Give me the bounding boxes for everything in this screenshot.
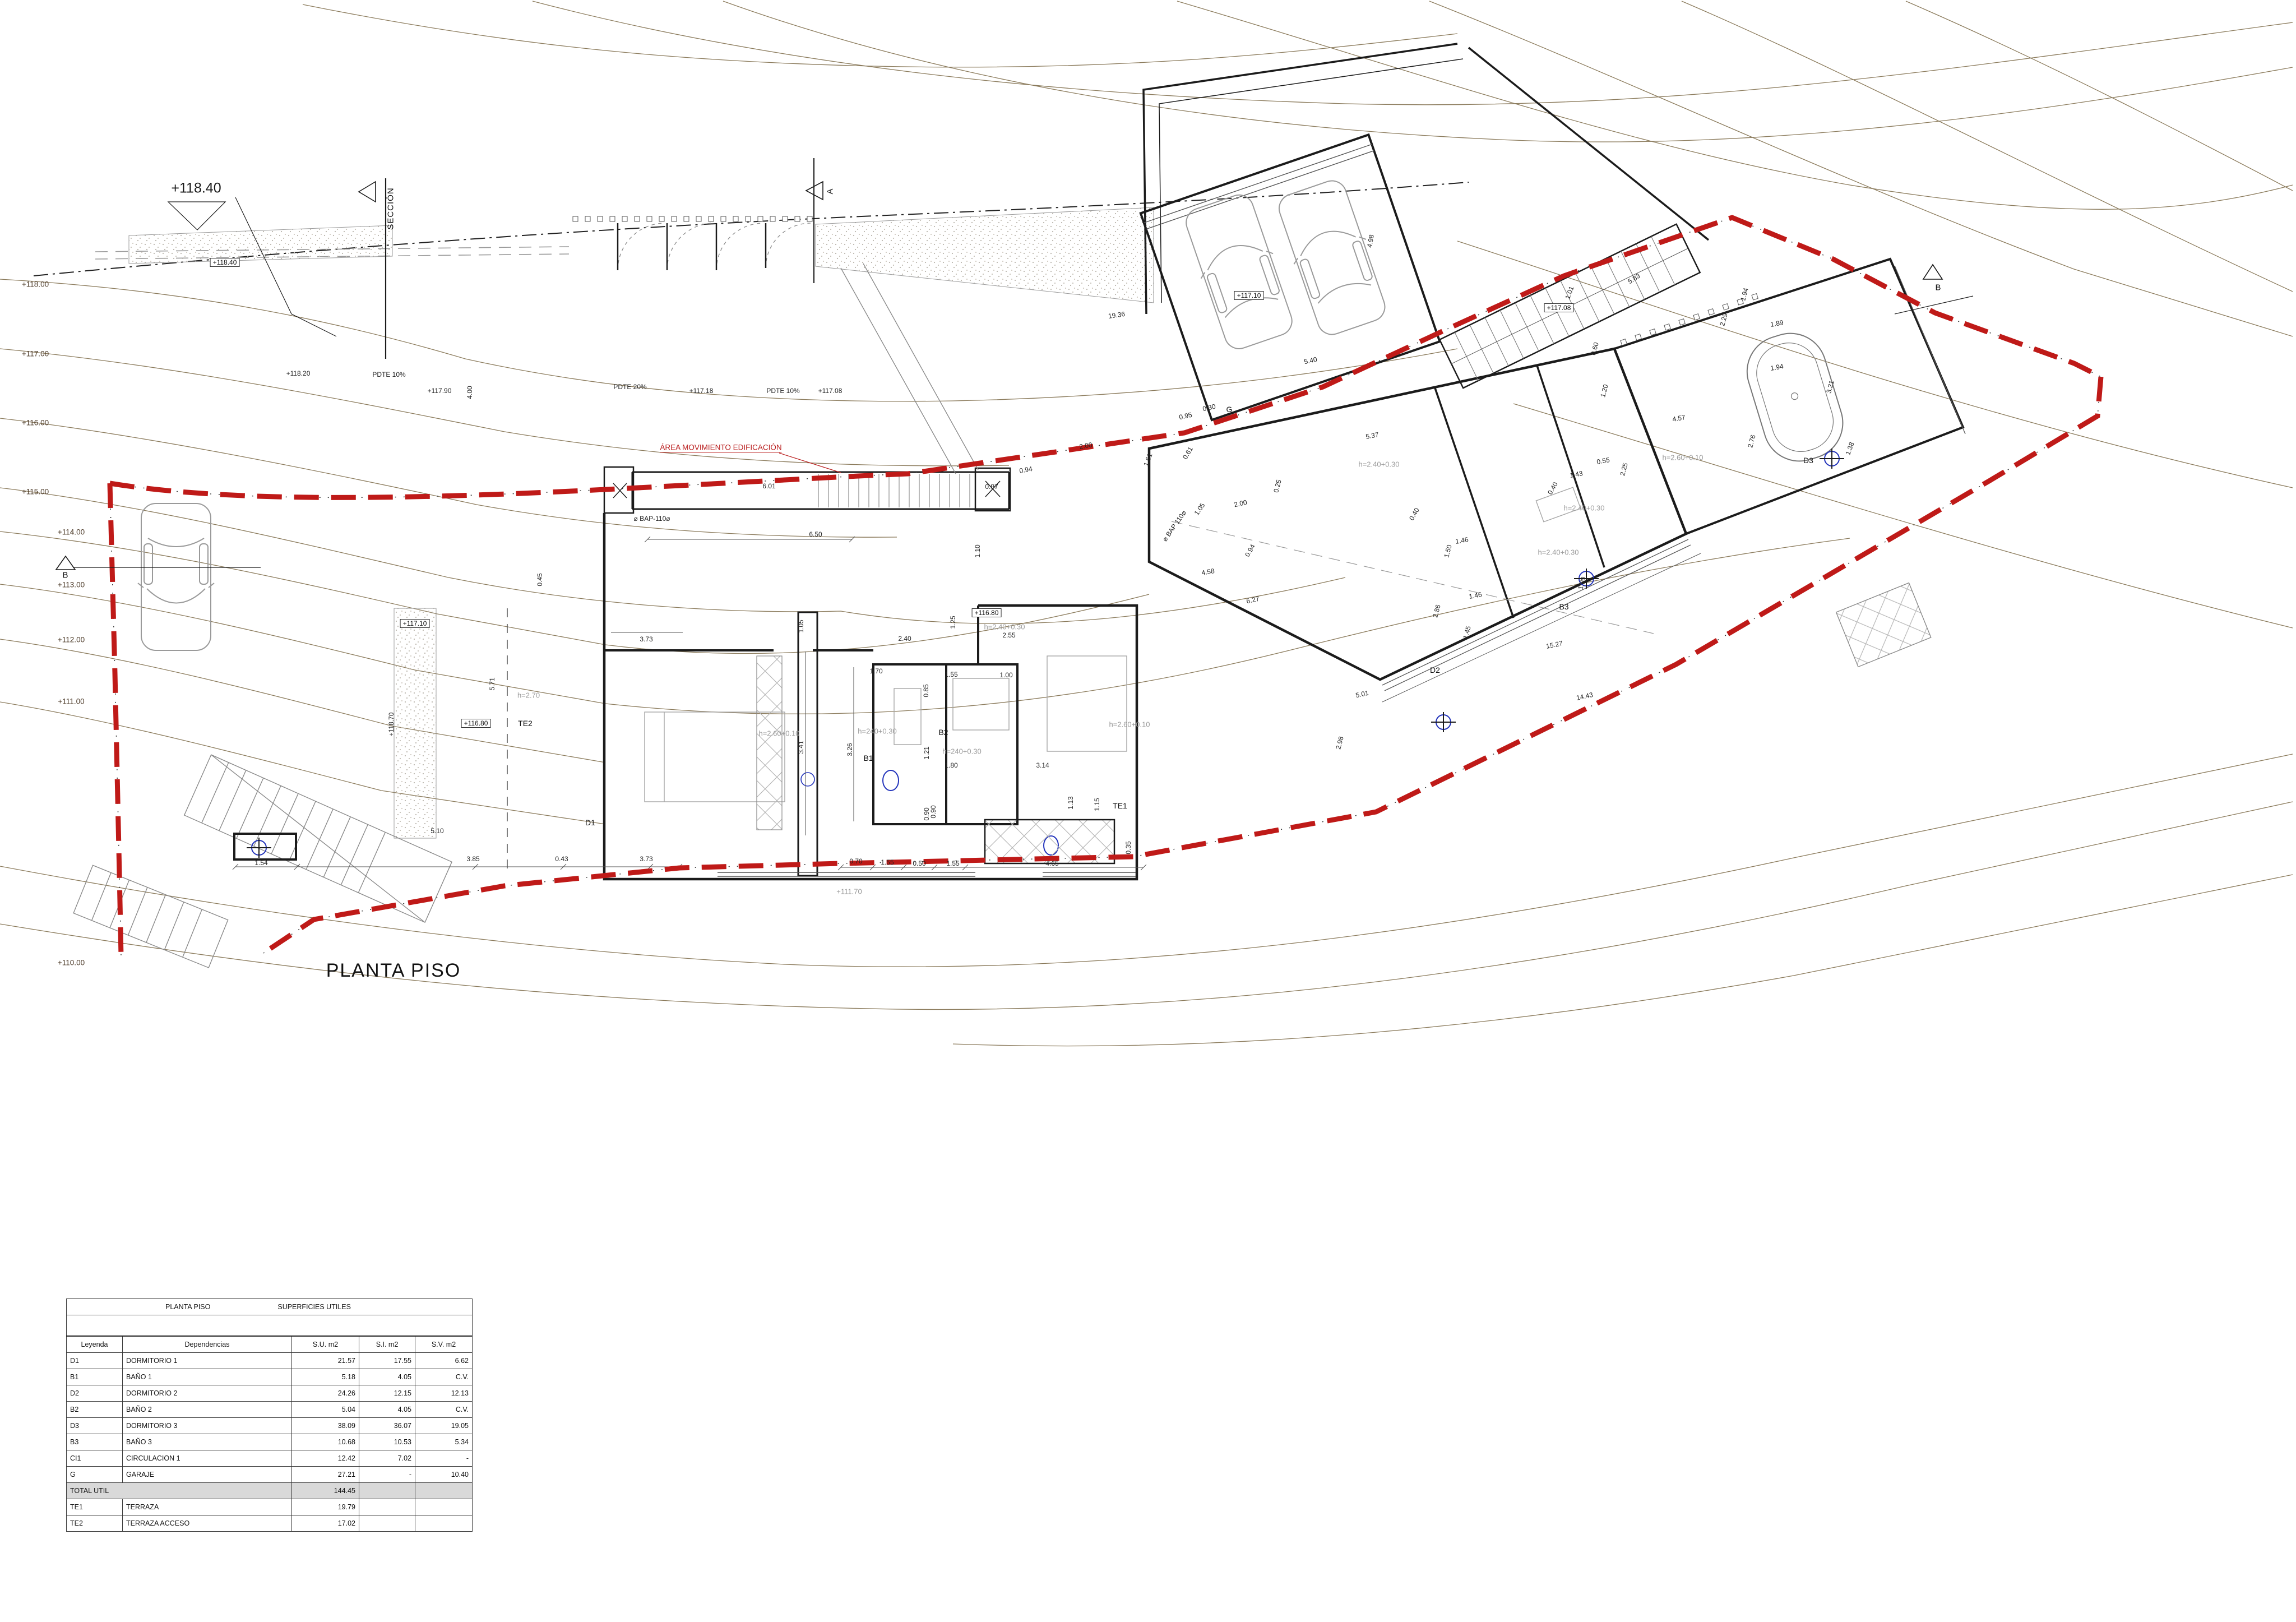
dim-label: 4.98 <box>1366 234 1375 248</box>
elevation-label: +113.00 <box>58 581 85 589</box>
dim-label: 2.55 <box>1002 632 1015 639</box>
height-label: h=2.70 <box>517 692 540 699</box>
table-cell: 7.02 <box>359 1450 415 1467</box>
dim-label: 5.37 <box>1365 431 1379 440</box>
table-cell: 19.79 <box>292 1499 359 1515</box>
dim-label: 1.55 <box>946 860 959 867</box>
section-marker-b: B <box>62 571 68 580</box>
elevation-label: +110.00 <box>58 959 85 967</box>
table-cell: DORMITORIO 2 <box>123 1385 292 1402</box>
dim-label: 4.65 <box>1045 860 1058 867</box>
dim-label: 0.40 <box>1408 507 1420 521</box>
table-row: TE1TERRAZA19.79 <box>67 1499 473 1515</box>
table-cell <box>415 1499 473 1515</box>
dim-label: 5.83 <box>1627 272 1641 285</box>
table-cell <box>415 1515 473 1532</box>
dim-label: 6.01 <box>762 483 775 489</box>
spot-elevation: +117.18 <box>689 387 714 394</box>
table-row: TE2TERRAZA ACCESO17.02 <box>67 1515 473 1532</box>
dim-label: 0.25 <box>1272 479 1283 493</box>
spot-elevation: +118.70 <box>388 713 395 737</box>
dim-label: 1.50 <box>1443 544 1453 558</box>
table-cell: 27.21 <box>292 1467 359 1483</box>
table-row: D3DORMITORIO 338.0936.0719.05 <box>67 1418 473 1434</box>
dim-label: 2.00 <box>1078 441 1093 450</box>
dim-label: 3.21 <box>1825 380 1835 394</box>
section-marker-a: A <box>826 188 835 194</box>
spot-elevation-boxed: +117.10 <box>400 619 430 628</box>
dim-label: 1.94 <box>1739 287 1749 302</box>
dim-label: 1.20 <box>1599 383 1609 398</box>
dim-label: 0.60 <box>1590 341 1600 356</box>
table-cell: CIRCULACION 1 <box>123 1450 292 1467</box>
dim-label: 1.45 <box>1462 625 1472 640</box>
room-label-b2: B2 <box>938 728 948 736</box>
room-label-te1: TE1 <box>1113 802 1127 810</box>
table-cell: TOTAL UTIL <box>67 1483 292 1499</box>
dim-label: 15.27 <box>1545 640 1563 650</box>
table-cell: D3 <box>67 1418 123 1434</box>
dim-label: 6.50 <box>809 531 822 538</box>
table-cell: 24.26 <box>292 1385 359 1402</box>
col-header-si: S.I. m2 <box>359 1336 415 1353</box>
room-label-te2: TE2 <box>518 719 533 727</box>
spot-elevation-boxed: +116.80 <box>461 719 491 728</box>
dim-label: 2.98 <box>1335 736 1345 750</box>
table-cell: 5.04 <box>292 1402 359 1418</box>
height-label: h=2.60+0.10 <box>1662 454 1703 461</box>
table-cell: GARAJE <box>123 1467 292 1483</box>
table-cell: CI1 <box>67 1450 123 1467</box>
dim-label: 0.94 <box>1244 543 1256 558</box>
room-label-d1: D1 <box>585 819 595 826</box>
height-label: h=240+0.30 <box>942 748 981 755</box>
dim-label: 5.10 <box>430 828 443 834</box>
dim-label: 0.55 <box>1596 456 1610 465</box>
area-movimiento-label: ÁREA MOVIMIENTO EDIFICACIÓN <box>660 443 781 452</box>
room-label-b3: B3 <box>1559 603 1568 611</box>
table-cell: DORMITORIO 3 <box>123 1418 292 1434</box>
dim-label: 0.35 <box>1125 841 1132 854</box>
spot-elevation-boxed: +118.40 <box>210 258 240 267</box>
dim-label: 0.40 <box>1547 481 1559 496</box>
table-cell <box>415 1483 473 1499</box>
table-cell: 4.05 <box>359 1369 415 1385</box>
dim-label: 5.40 <box>1303 356 1317 366</box>
dim-label: 4.58 <box>1201 567 1215 576</box>
height-label: h=240+0.30 <box>858 728 896 735</box>
table-row: B1BAÑO 15.184.05C.V. <box>67 1369 473 1385</box>
dim-label: 2.00 <box>1233 499 1247 509</box>
table-cell: TERRAZA ACCESO <box>123 1515 292 1532</box>
dim-label: 0.70 <box>849 858 862 865</box>
dim-label: 3.14 <box>1036 762 1049 769</box>
table-cell: G <box>67 1467 123 1483</box>
dim-label: 5.01 <box>1355 690 1369 699</box>
table-cell: 12.13 <box>415 1385 473 1402</box>
height-label: h=2.40+0.30 <box>1563 505 1604 512</box>
table-cell: BAÑO 3 <box>123 1434 292 1450</box>
table-title-row: PLANTA PISO SUPERFICIES UTILES <box>67 1299 473 1315</box>
plan-title: PLANTA PISO <box>326 961 461 980</box>
table-cell: C.V. <box>415 1369 473 1385</box>
dim-label: 1.70 <box>869 668 882 674</box>
table-cell: 17.55 <box>359 1353 415 1369</box>
table-cell: 17.02 <box>292 1515 359 1532</box>
dim-label: 1.00 <box>1577 576 1587 590</box>
room-label-d3: D3 <box>1803 456 1813 464</box>
dim-label: 1.43 <box>1569 470 1583 479</box>
table-cell: D1 <box>67 1353 123 1369</box>
table-total-row: TOTAL UTIL144.45 <box>67 1483 473 1499</box>
spot-elevation-boxed: +116.80 <box>972 608 1002 617</box>
plan-sheet: +118.00+117.00+116.00+115.00+114.00+113.… <box>0 0 2296 1622</box>
table-cell: 36.07 <box>359 1418 415 1434</box>
table-cell <box>359 1483 415 1499</box>
dim-label: 2.25 <box>1619 462 1629 477</box>
table-row: D1DORMITORIO 121.5717.556.62 <box>67 1353 473 1369</box>
table-cell: C.V. <box>415 1402 473 1418</box>
room-label-d2: D2 <box>1430 666 1440 674</box>
height-label: h=2.40+0.30 <box>1358 461 1399 468</box>
table-cell: B3 <box>67 1434 123 1450</box>
dim-label: 3.85 <box>466 856 479 862</box>
table-cell: 12.15 <box>359 1385 415 1402</box>
table-cell: 10.53 <box>359 1434 415 1450</box>
dim-label: 1.21 <box>923 746 930 759</box>
dim-label: 19.36 <box>1108 311 1125 320</box>
spot-elevation: +117.08 <box>818 387 843 394</box>
dim-label: 3.26 <box>846 743 853 756</box>
drain-label: ⌀ BAP 110⌀ <box>1161 509 1188 542</box>
spot-elevation: +118.20 <box>286 370 311 377</box>
table-row: B2BAÑO 25.044.05C.V. <box>67 1402 473 1418</box>
height-label: h=2.60+0.10 <box>758 730 799 737</box>
table-title-left: PLANTA PISO <box>165 1303 210 1311</box>
table-row: D2DORMITORIO 224.2612.1512.13 <box>67 1385 473 1402</box>
room-label-g: G <box>1226 405 1233 413</box>
table-cell: B2 <box>67 1402 123 1418</box>
table-title-right: SUPERFICIES UTILES <box>277 1303 351 1311</box>
elevation-label: +116.00 <box>22 419 49 427</box>
table-cell: 5.34 <box>415 1434 473 1450</box>
table-row: CI1CIRCULACION 112.427.02- <box>67 1450 473 1467</box>
elevation-label: +112.00 <box>58 636 85 644</box>
table-cell: 6.62 <box>415 1353 473 1369</box>
dim-label: 3.73 <box>640 636 652 643</box>
dim-label: 4.00 <box>466 386 473 399</box>
table-cell: 19.05 <box>415 1418 473 1434</box>
col-header-leyenda: Leyenda <box>67 1336 123 1353</box>
table-cell: DORMITORIO 1 <box>123 1353 292 1369</box>
dim-label: 2.86 <box>1432 604 1442 618</box>
height-label: h=2.40+0.30 <box>984 623 1025 631</box>
dim-label: 6.27 <box>1246 595 1260 605</box>
col-header-sv: S.V. m2 <box>415 1336 473 1353</box>
dim-label: 1.54 <box>254 859 267 866</box>
dim-label: 1.61 <box>1142 452 1153 467</box>
table-cell: - <box>359 1467 415 1483</box>
dim-label: 0.43 <box>555 856 568 862</box>
table-cell: 38.09 <box>292 1418 359 1434</box>
dim-label: 1.10 <box>974 544 981 557</box>
elevation-label: +114.00 <box>58 528 85 536</box>
table-cell: TE1 <box>67 1499 123 1515</box>
spot-elevation: +111.70 <box>836 888 862 895</box>
table-header-row: Leyenda Dependencias S.U. m2 S.I. m2 S.V… <box>67 1336 473 1353</box>
table-cell <box>359 1515 415 1532</box>
dim-label: 1.38 <box>1844 441 1855 456</box>
table-cell: - <box>415 1450 473 1467</box>
dim-label: 3.41 <box>798 741 804 754</box>
table-cell: TE2 <box>67 1515 123 1532</box>
table-row: GGARAJE27.21-10.40 <box>67 1467 473 1483</box>
table-gap-row <box>67 1315 473 1337</box>
dim-label: 1.13 <box>1067 796 1074 809</box>
dim-label: 1.89 <box>1770 319 1784 328</box>
table-cell: 144.45 <box>292 1483 359 1499</box>
dim-label: 1.15 <box>1094 798 1100 811</box>
table-cell: 5.18 <box>292 1369 359 1385</box>
dim-label: 5.71 <box>489 677 496 690</box>
dim-label: 0.90 <box>930 805 937 818</box>
dim-label: 0.30 <box>1202 403 1216 413</box>
dim-label: 0.94 <box>1019 465 1033 474</box>
table-cell <box>359 1499 415 1515</box>
elevation-label: +118.00 <box>22 280 49 288</box>
dim-label: 0.95 <box>1178 412 1192 421</box>
dim-label: 0.45 <box>536 573 543 586</box>
slope-label: PDTE 10% <box>766 387 799 394</box>
dim-label: 1.55 <box>945 671 957 678</box>
dim-label: 1.01 <box>1564 285 1575 300</box>
dim-label: 3.73 <box>640 856 652 862</box>
spot-elevation: +117.90 <box>428 387 452 394</box>
dim-label: 1.46 <box>1455 536 1469 545</box>
spot-elevation-boxed: +117.08 <box>1544 303 1574 312</box>
drain-label: ⌀ BAP-110⌀ <box>634 515 670 522</box>
table-row: B3BAÑO 310.6810.535.34 <box>67 1434 473 1450</box>
table-cell: B1 <box>67 1369 123 1385</box>
elevation-label: +117.00 <box>22 350 49 358</box>
dim-label: 1.55 <box>881 859 894 866</box>
spot-elevation: +118.40 <box>171 182 221 196</box>
height-label: h=2.60+0.10 <box>1109 721 1150 728</box>
elevation-label: +115.00 <box>22 488 49 496</box>
dim-label: 1.05 <box>798 620 804 632</box>
table-cell: 10.68 <box>292 1434 359 1450</box>
dim-label: 0.61 <box>1182 446 1194 460</box>
table-cell: 10.40 <box>415 1467 473 1483</box>
dim-label: 1.05 <box>1193 502 1206 516</box>
table-cell: 21.57 <box>292 1353 359 1369</box>
section-marker-b: B <box>1935 284 1941 292</box>
spot-elevation-boxed: +117.10 <box>1234 291 1264 300</box>
dim-label: 1.80 <box>945 762 957 769</box>
surface-table-body: D1DORMITORIO 121.5717.556.62B1BAÑO 15.18… <box>67 1353 473 1532</box>
dim-label: 0.97 <box>985 483 998 490</box>
dim-label: 1.94 <box>1770 363 1784 372</box>
table-cell: 12.42 <box>292 1450 359 1467</box>
table-cell: 4.05 <box>359 1402 415 1418</box>
section-label: SECCIÓN <box>387 187 395 229</box>
surface-table: PLANTA PISO SUPERFICIES UTILES Leyenda D… <box>66 1298 473 1532</box>
col-header-dependencias: Dependencias <box>123 1336 292 1353</box>
slope-label: PDTE 10% <box>372 371 405 378</box>
elevation-label: +111.00 <box>58 697 84 705</box>
dim-label: 0.85 <box>923 684 929 697</box>
dim-label: 1.25 <box>950 616 956 629</box>
dim-label: 1.00 <box>999 672 1012 678</box>
dim-label: 14.43 <box>1576 691 1594 701</box>
dim-label: 2.29 <box>1719 312 1729 327</box>
table-cell: BAÑO 2 <box>123 1402 292 1418</box>
dim-label: 2.76 <box>1747 434 1757 449</box>
room-label-b1: B1 <box>863 754 873 762</box>
dim-label: 2.40 <box>898 635 911 642</box>
table-cell: TERRAZA <box>123 1499 292 1515</box>
slope-label: PDTE 20% <box>613 383 646 390</box>
table-cell: D2 <box>67 1385 123 1402</box>
dim-label: 0.50 <box>913 860 925 867</box>
col-header-su: S.U. m2 <box>292 1336 359 1353</box>
dim-label: 1.46 <box>1468 591 1482 600</box>
height-label: h=2.40+0.30 <box>1538 549 1578 556</box>
dim-label: 4.57 <box>1672 414 1686 423</box>
table-cell: BAÑO 1 <box>123 1369 292 1385</box>
